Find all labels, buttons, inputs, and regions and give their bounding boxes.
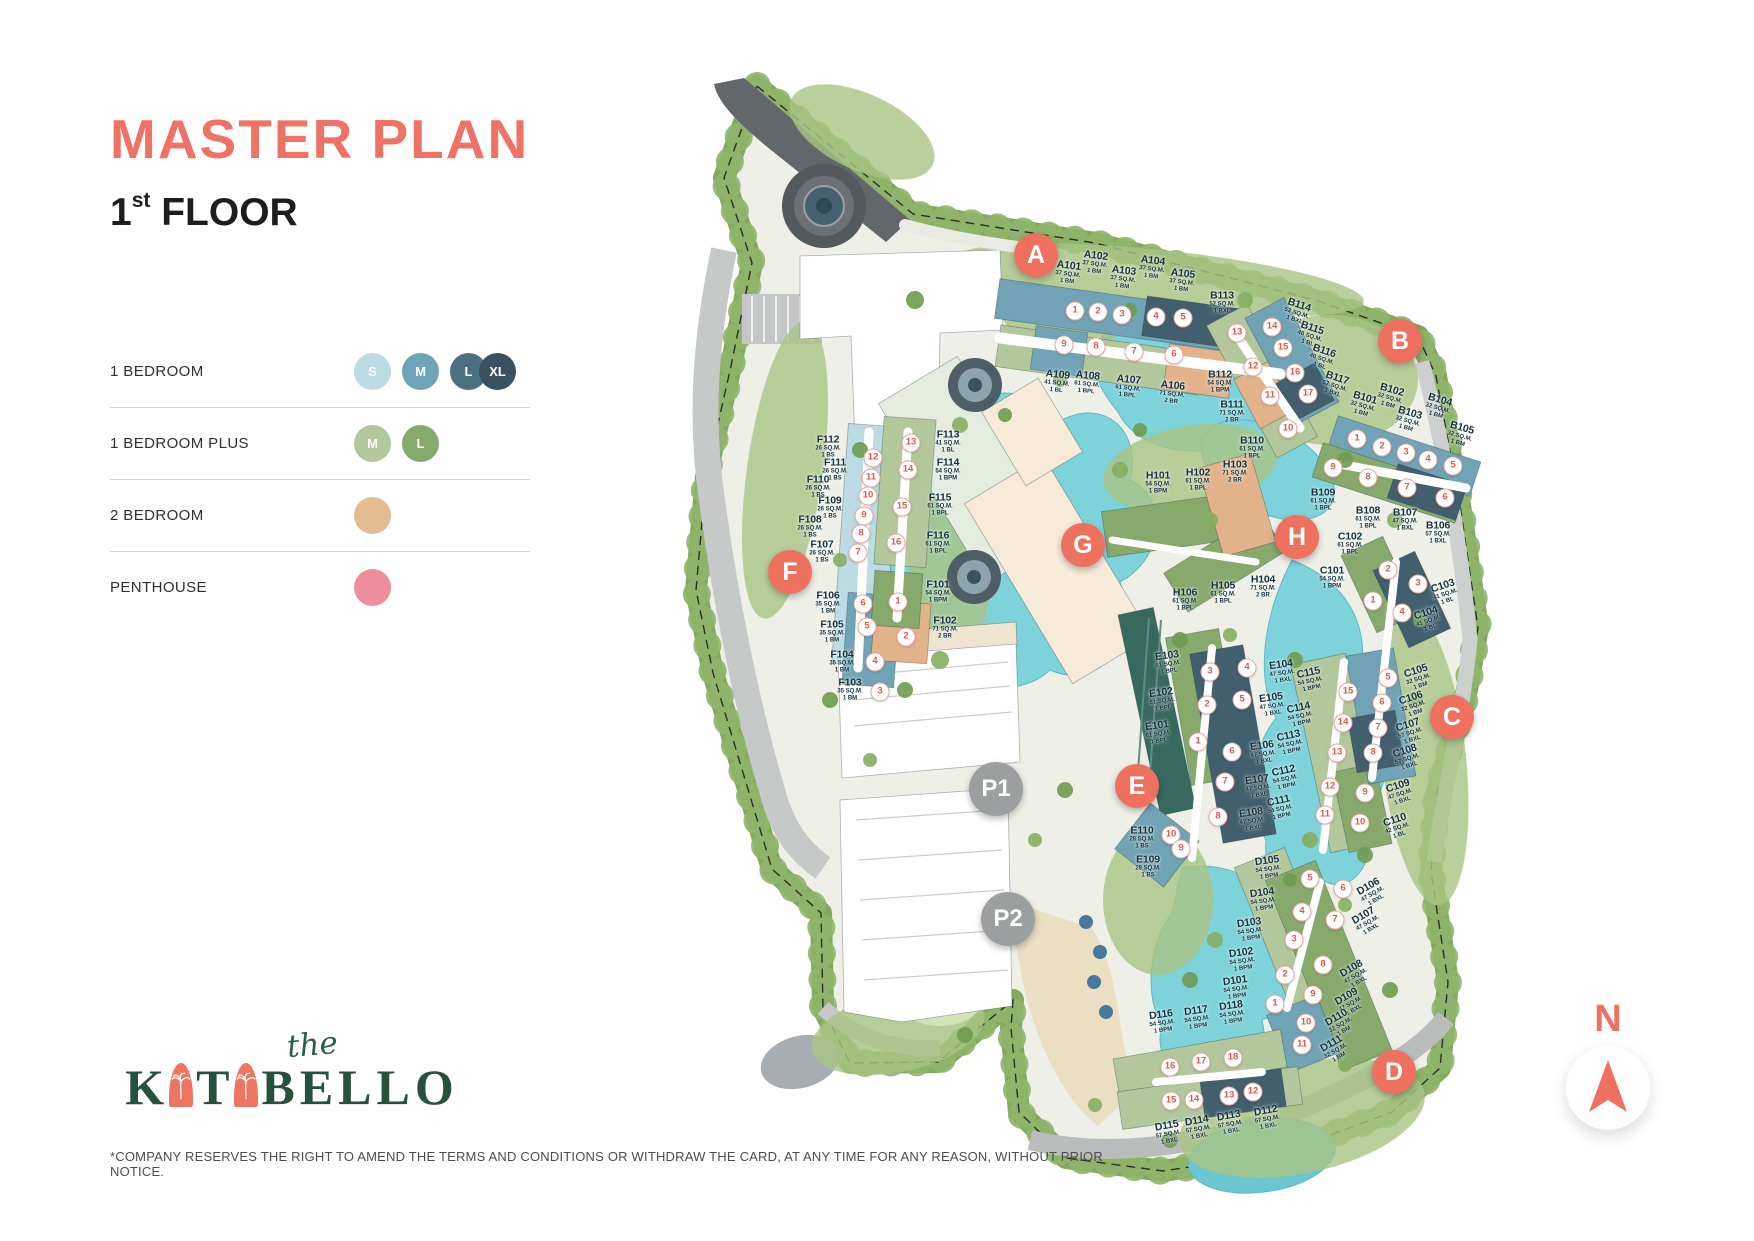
unit-number-circle: 13	[1328, 744, 1347, 763]
legend-row-label: 2 BEDROOM	[110, 507, 204, 524]
building-marker-c[interactable]: C	[1430, 695, 1474, 739]
unit-label-F112: F11226 SQ.M.1 BS	[815, 435, 840, 460]
unit-label-B112: B11254 SQ.M.1 BPM	[1207, 370, 1232, 395]
unit-label-A107: A10761 SQ.M.1 BPL	[1114, 373, 1142, 400]
legend-chips	[354, 569, 402, 606]
unit-number-circle: 11	[1261, 387, 1280, 406]
unit-type-legend: 1 BEDROOMSMLXL1 BEDROOM PLUSML2 BEDROOMP…	[110, 336, 530, 623]
floor-ordinal-suffix: st	[132, 189, 151, 212]
disclaimer-text: *COMPANY RESERVES THE RIGHT TO AMEND THE…	[110, 1149, 1120, 1179]
floor-subtitle: 1st FLOOR	[110, 190, 298, 232]
legend-row: 1 BEDROOMSMLXL	[110, 336, 530, 408]
unit-number-circle: 5	[858, 618, 877, 637]
surfboard-palm-icon	[169, 1063, 193, 1107]
legend-chips: ML	[354, 425, 450, 462]
unit-number-circle: 10	[1297, 1014, 1316, 1033]
unit-label-D102: D10254 SQ.M.1 BPM	[1228, 946, 1257, 974]
building-marker-d[interactable]: D	[1372, 1050, 1416, 1094]
unit-number-circle: 18	[1224, 1049, 1243, 1068]
logo-script-the: the	[285, 1028, 338, 1063]
floor-word: FLOOR	[150, 191, 297, 234]
unit-label-D105: D10554 SQ.M.1 BPM	[1254, 854, 1283, 882]
unit-label-A108: A10861 SQ.M.1 BPL	[1073, 369, 1101, 396]
unit-number-circle: 6	[1165, 346, 1184, 365]
north-arrow-icon	[1566, 1046, 1650, 1130]
unit-label-F115: F11561 SQ.M.1 BPL	[927, 493, 952, 518]
unit-label-D115: D11557 SQ.M.1 BXL	[1153, 1119, 1182, 1148]
unit-number-circle: 10	[859, 487, 878, 506]
unit-number-circle: 4	[1393, 604, 1412, 623]
unit-label-C104: C10441 SQ.M.1 BL	[1412, 604, 1444, 635]
unit-number-circle: 1	[1066, 302, 1085, 321]
unit-number-circle: 13	[1228, 324, 1247, 343]
unit-label-F113: F11341 SQ.M.1 BL	[935, 430, 960, 455]
unit-number-circle: 8	[852, 525, 871, 544]
unit-label-B106: B10657 SQ.M.1 BXL	[1425, 521, 1450, 546]
legend-row-label: PENTHOUSE	[110, 579, 207, 596]
building-marker-e[interactable]: E	[1115, 764, 1159, 808]
unit-label-H102: H10261 SQ.M.1 BPL	[1185, 468, 1210, 493]
unit-label-B108: B10861 SQ.M.1 BPL	[1355, 506, 1380, 531]
unit-label-C108: C10857 SQ.M.1 BXL	[1391, 742, 1423, 773]
unit-number-circle: 8	[1314, 956, 1333, 975]
unit-label-C112: C11254 SQ.M.1 BPM	[1270, 763, 1300, 793]
unit-number-circle: 2	[1379, 561, 1398, 580]
building-marker-b[interactable]: B	[1378, 319, 1422, 363]
unit-label-H105: H10561 SQ.M.1 BPL	[1210, 581, 1235, 606]
katabello-logo: the KTBELLO	[122, 1030, 462, 1108]
unit-number-circle: 12	[864, 449, 883, 468]
unit-label-C113: C11354 SQ.M.1 BPM	[1275, 728, 1305, 758]
unit-label-E106: E10647 SQ.M.1 BXL	[1249, 739, 1278, 767]
unit-label-E104: E10447 SQ.M.1 BXL	[1268, 658, 1297, 686]
surfboard-palm-icon	[234, 1063, 258, 1107]
unit-number-circle: 15	[1339, 683, 1358, 702]
unit-label-C114: C11454 SQ.M.1 BPM	[1285, 700, 1315, 730]
unit-number-circle: 1	[1266, 995, 1285, 1014]
unit-label-E109: E10928 SQ.M.1 BS	[1135, 855, 1160, 880]
unit-label-F103: F10335 SQ.M.1 BM	[837, 678, 862, 703]
unit-label-E110: E11028 SQ.M.1 BS	[1129, 826, 1154, 851]
unit-number-circle: 6	[854, 595, 873, 614]
unit-label-D118: D11854 SQ.M.1 BPM	[1218, 999, 1247, 1027]
building-marker-a[interactable]: A	[1014, 233, 1058, 277]
unit-number-circle: 4	[1147, 308, 1166, 327]
unit-number-circle: 2	[1198, 696, 1217, 715]
unit-number-circle: 9	[1324, 459, 1343, 478]
unit-label-H106: H10661 SQ.M.1 BPL	[1172, 588, 1197, 613]
unit-label-F111: F11126 SQ.M.1 BS	[822, 458, 847, 483]
unit-number-circle: 7	[1398, 479, 1417, 498]
unit-number-circle: 3	[1285, 931, 1304, 950]
unit-label-D112: D11257 SQ.M.1 BXL	[1252, 1104, 1281, 1133]
unit-label-F114: F11454 SQ.M.1 BPM	[935, 458, 960, 483]
unit-number-circle: 2	[1373, 438, 1392, 457]
unit-number-circle: 15	[1274, 339, 1293, 358]
unit-number-circle: 2	[897, 628, 916, 647]
unit-number-circle: 3	[1201, 663, 1220, 682]
unit-label-F101: F10154 SQ.M.1 BPM	[925, 580, 950, 605]
unit-number-circle: 9	[1356, 784, 1375, 803]
unit-number-circle: 12	[1244, 1083, 1263, 1102]
unit-number-circle: 2	[1276, 966, 1295, 985]
unit-label-C102: C10261 SQ.M.1 BPL	[1337, 532, 1362, 557]
unit-label-C109: C10947 SQ.M.1 BXL	[1384, 777, 1416, 808]
unit-number-circle: 9	[855, 507, 874, 526]
unit-number-circle: 8	[1209, 808, 1228, 827]
unit-label-A101: A10137 SQ.M.1 BM	[1054, 259, 1082, 287]
unit-number-circle: 8	[1359, 469, 1378, 488]
unit-label-C101: C10154 SQ.M.1 BPM	[1319, 566, 1344, 591]
unit-number-circle: 12	[1321, 778, 1340, 797]
unit-number-circle: 16	[1161, 1058, 1180, 1077]
unit-number-circle: 7	[849, 544, 868, 563]
unit-number-circle: 9	[1172, 840, 1191, 859]
unit-label-F106: F10635 SQ.M.1 BM	[815, 591, 840, 616]
unit-number-circle: 3	[1397, 444, 1416, 463]
unit-label-A109: A10941 SQ.M.1 BL	[1043, 368, 1071, 395]
unit-label-H103: H10371 SQ.M.2 BR	[1222, 460, 1247, 485]
compass-dial	[1566, 1046, 1650, 1130]
legend-size-chip	[354, 569, 391, 606]
unit-number-circle: 7	[1216, 773, 1235, 792]
unit-label-D111: D11132 SQ.M.1 BM	[1318, 1033, 1352, 1067]
building-marker-f[interactable]: F	[768, 550, 812, 594]
unit-label-F105: F10535 SQ.M.1 BM	[819, 620, 844, 645]
unit-label-H101: H10154 SQ.M.1 BPM	[1145, 471, 1170, 496]
master-plan-page: 1234598761314121516111710123459876231451…	[0, 0, 1754, 1241]
legend-size-chip	[354, 497, 391, 534]
unit-label-H104: H10471 SQ.M.2 BR	[1250, 575, 1275, 600]
unit-number-circle: 3	[1409, 575, 1428, 594]
unit-label-D107: D10747 SQ.M.1 BXL	[1350, 905, 1384, 939]
unit-label-A103: A10337 SQ.M.1 BM	[1109, 264, 1137, 292]
legend-row-label: 1 BEDROOM	[110, 363, 204, 380]
unit-label-E105: E10547 SQ.M.1 BXL	[1258, 691, 1287, 719]
unit-number-circle: 16	[887, 534, 906, 553]
unit-label-B104: B10432 SQ.M.1 BM	[1422, 392, 1453, 423]
unit-label-E101: E10161 SQ.M.1 BPL	[1144, 719, 1173, 747]
unit-number-circle: 13	[1220, 1087, 1239, 1106]
floor-number: 1	[110, 191, 132, 234]
unit-number-circle: 5	[1233, 691, 1252, 710]
logo-wordmark: KTBELLO	[122, 1063, 462, 1108]
unit-label-B113: B11352 SQ.M.1 BXL	[1209, 291, 1234, 316]
legend-row: PENTHOUSE	[110, 552, 530, 623]
unit-number-circle: 9	[1304, 986, 1323, 1005]
unit-label-F107: F10726 SQ.M.1 BS	[809, 540, 834, 565]
unit-number-circle: 17	[1192, 1053, 1211, 1072]
unit-number-circle: 11	[1293, 1036, 1312, 1055]
unit-number-circle: 6	[1373, 694, 1392, 713]
unit-label-C110: C11042 SQ.M.1 BL	[1381, 811, 1413, 842]
unit-number-circle: 4	[866, 653, 885, 672]
unit-number-circle: 1	[1364, 592, 1383, 611]
building-marker-g[interactable]: G	[1061, 523, 1105, 567]
unit-number-circle: 9	[1055, 336, 1074, 355]
unit-label-A105: A10537 SQ.M.1 BM	[1168, 267, 1196, 295]
unit-label-B103: B10332 SQ.M.1 BM	[1392, 405, 1423, 436]
unit-label-B117: B11752 SQ.M.1 BXL	[1319, 369, 1351, 400]
unit-number-circle: 5	[1444, 457, 1463, 476]
unit-label-F102: F10271 SQ.M.2 BR	[932, 616, 957, 641]
legend-size-chip: M	[354, 425, 391, 462]
legend-size-chip: S	[354, 353, 391, 390]
unit-number-circle: 6	[1334, 880, 1353, 899]
unit-label-E102: E10261 SQ.M.1 BPL	[1148, 686, 1177, 714]
unit-number-circle: 11	[862, 469, 881, 488]
unit-number-circle: 2	[1089, 303, 1108, 322]
unit-number-circle: 8	[1087, 338, 1106, 357]
unit-label-A106: A10671 SQ.M.2 BR	[1158, 379, 1186, 406]
unit-number-circle: 6	[1436, 489, 1455, 508]
unit-number-circle: 14	[1185, 1091, 1204, 1110]
legend-size-chip: L	[402, 425, 439, 462]
unit-number-circle: 8	[1364, 744, 1383, 763]
legend-size-chip: M	[402, 353, 439, 390]
legend-row: 1 BEDROOM PLUSML	[110, 408, 530, 480]
unit-number-circle: 13	[902, 434, 921, 453]
unit-label-B107: B10747 SQ.M.1 BXL	[1392, 508, 1417, 533]
unit-number-circle: 3	[1113, 306, 1132, 325]
unit-label-D117: D11754 SQ.M.1 BPM	[1183, 1004, 1212, 1032]
unit-label-D103: D10354 SQ.M.1 BPM	[1236, 916, 1265, 944]
building-marker-h[interactable]: H	[1275, 515, 1319, 559]
unit-number-circle: 4	[1419, 451, 1438, 470]
unit-number-circle: 15	[893, 498, 912, 517]
unit-number-circle: 14	[899, 461, 918, 480]
unit-number-circle: 12	[1244, 358, 1263, 377]
unit-number-circle: 6	[1223, 743, 1242, 762]
unit-label-A104: A10437 SQ.M.1 BM	[1138, 254, 1166, 282]
unit-number-circle: 10	[1279, 420, 1298, 439]
unit-number-circle: 7	[1369, 719, 1388, 738]
unit-label-E108: E10847 SQ.M.1 BXL	[1238, 806, 1267, 834]
unit-label-E103: E10361 SQ.M.1 BPL	[1154, 649, 1183, 677]
unit-number-circle: 5	[1174, 309, 1193, 328]
unit-number-circle: 14	[1334, 714, 1353, 733]
unit-number-circle: 10	[1351, 814, 1370, 833]
unit-number-circle: 17	[1299, 385, 1318, 404]
unit-number-circle: 1	[1348, 430, 1367, 449]
logo-letter: K	[125, 1066, 169, 1109]
unit-number-circle: 14	[1263, 318, 1282, 337]
legend-chips: SMLXL	[354, 353, 527, 390]
compass: N	[1562, 1000, 1654, 1130]
building-marker-p1[interactable]: P1	[969, 762, 1023, 816]
unit-label-F116: F11661 SQ.M.1 BPL	[925, 531, 950, 556]
unit-number-circle: 1	[889, 593, 908, 612]
unit-label-D104: D10454 SQ.M.1 BPM	[1249, 886, 1278, 914]
legend-row-label: 1 BEDROOM PLUS	[110, 435, 249, 452]
legend-row: 2 BEDROOM	[110, 480, 530, 552]
logo-letter: T	[196, 1066, 234, 1109]
logo-letter: BELLO	[261, 1066, 458, 1109]
unit-number-circle: 3	[871, 683, 890, 702]
unit-number-circle: 1	[1189, 733, 1208, 752]
unit-number-circle: 7	[1125, 343, 1144, 362]
unit-label-D113: D11357 SQ.M.1 BXL	[1215, 1109, 1244, 1138]
page-title: MASTER PLAN	[110, 112, 529, 167]
unit-number-circle: 7	[1326, 911, 1345, 930]
unit-label-A102: A10237 SQ.M.1 BM	[1081, 249, 1109, 277]
unit-label-B109: B10961 SQ.M.1 BPL	[1310, 488, 1335, 513]
unit-label-B111: B11171 SQ.M.2 BR	[1219, 400, 1244, 425]
unit-number-circle: 4	[1293, 903, 1312, 922]
unit-number-circle: 5	[1379, 669, 1398, 688]
unit-label-B105: B10532 SQ.M.1 BM	[1444, 420, 1475, 451]
legend-chips	[354, 497, 402, 534]
unit-label-E107: E10747 SQ.M.1 BXL	[1244, 773, 1273, 801]
unit-number-circle: 11	[1316, 806, 1335, 825]
unit-label-B110: B11061 SQ.M.1 BPL	[1239, 436, 1264, 461]
unit-number-circle: 4	[1238, 659, 1257, 678]
unit-number-circle: 5	[1301, 870, 1320, 889]
unit-number-circle: 15	[1162, 1092, 1181, 1111]
unit-label-D116: D11654 SQ.M.1 BPM	[1148, 1008, 1177, 1036]
unit-label-C115: C11554 SQ.M.1 BPM	[1295, 665, 1325, 695]
unit-label-F104: F10435 SQ.M.1 BM	[829, 650, 854, 675]
building-marker-p2[interactable]: P2	[981, 892, 1035, 946]
unit-number-circle: 16	[1286, 364, 1305, 383]
compass-north-label: N	[1562, 1000, 1654, 1038]
unit-label-D114: D11457 SQ.M.1 BXL	[1183, 1114, 1212, 1143]
legend-size-chip: XL	[479, 353, 516, 390]
